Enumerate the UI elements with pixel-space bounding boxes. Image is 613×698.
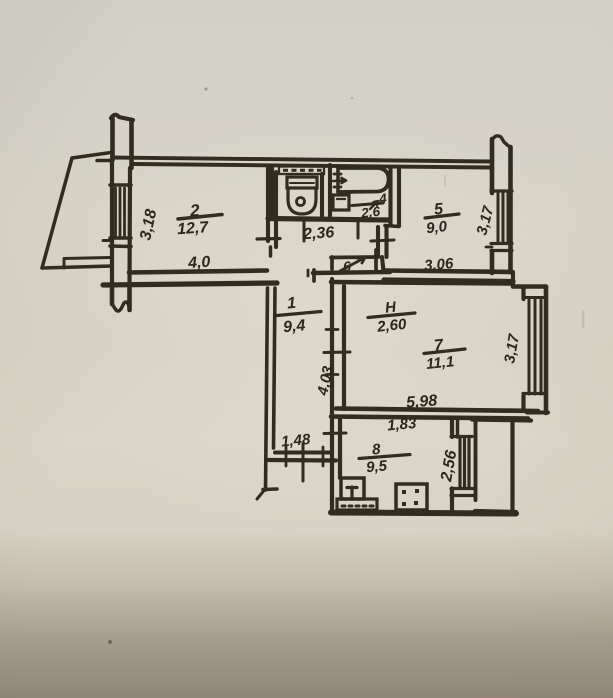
svg-text:3,17: 3,17: [473, 204, 497, 237]
svg-text:12,7: 12,7: [177, 219, 210, 238]
svg-text:2,56: 2,56: [438, 449, 460, 484]
svg-text:1: 1: [286, 295, 296, 313]
svg-text:2,60: 2,60: [375, 316, 407, 336]
svg-text:1,83: 1,83: [386, 415, 417, 435]
svg-text:9,4: 9,4: [282, 317, 306, 336]
svg-text:11,1: 11,1: [425, 353, 455, 373]
svg-text:9,5: 9,5: [365, 457, 388, 476]
svg-text:2,6: 2,6: [359, 204, 381, 221]
svg-text:2,36: 2,36: [302, 224, 335, 243]
svg-text:3,18: 3,18: [137, 208, 160, 242]
svg-text:3,17: 3,17: [501, 332, 523, 364]
svg-text:1,48: 1,48: [280, 431, 311, 451]
svg-text:9,0: 9,0: [425, 218, 448, 237]
